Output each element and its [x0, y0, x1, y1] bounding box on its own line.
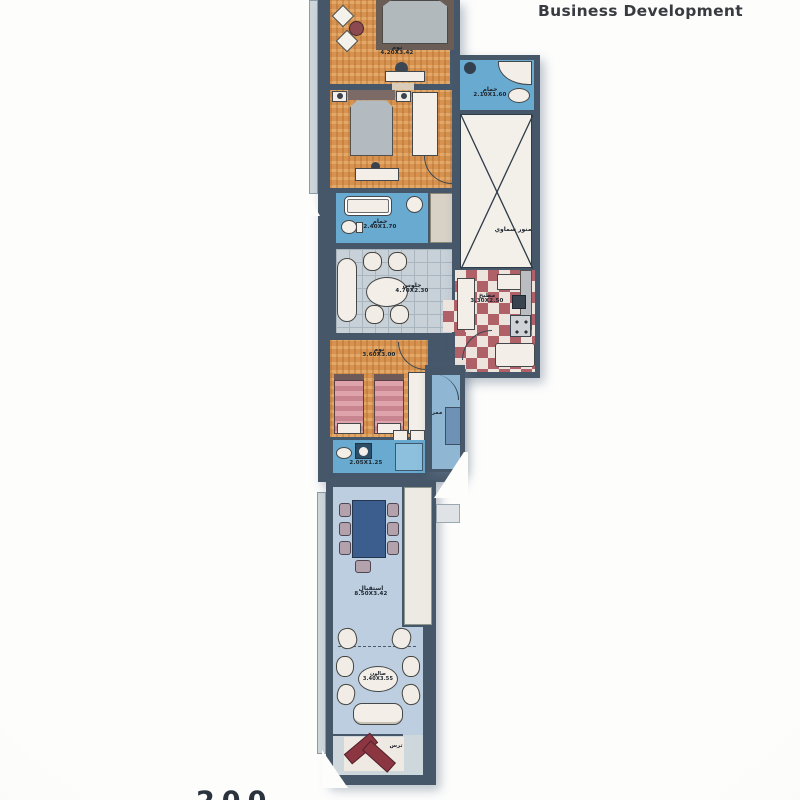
light-well	[460, 114, 532, 268]
lamp-icon	[337, 93, 343, 99]
kitchen-table	[495, 343, 535, 367]
armchair	[336, 656, 354, 677]
stove-burners	[510, 315, 531, 337]
sofa	[353, 703, 403, 725]
bedroom1-label: نوم 4.20X3.42	[362, 45, 432, 57]
double-bed	[350, 98, 393, 156]
side-table	[349, 21, 364, 36]
sink	[336, 447, 352, 459]
bedroom3-label: نوم 3.60X3.00	[356, 347, 402, 359]
toilet	[508, 88, 530, 103]
shower-area	[395, 443, 423, 471]
building-lower-wing: استقبال 8.50X3.42 صالون 3.40X3.55 ترس	[326, 480, 436, 785]
hall-label: ممر	[429, 411, 445, 417]
door-gap	[392, 83, 414, 90]
wardrobe	[412, 92, 438, 156]
sink	[406, 196, 423, 213]
exterior-ledge	[436, 504, 460, 523]
reception-label: استقبال 8.50X3.42	[346, 586, 396, 598]
light-well-label: منور سماوي	[492, 227, 534, 233]
chair	[365, 305, 384, 324]
dresser	[355, 168, 399, 181]
annex-bathroom-label: حمام 2.10X1.60	[470, 87, 510, 99]
building-annex: حمام 2.10X1.60 منور سماوي مطبخ 3.30X2.50	[452, 55, 540, 378]
page-title: Business Development	[538, 2, 743, 20]
toilet-bowl	[359, 447, 368, 456]
chair	[363, 252, 382, 271]
dining-chair	[339, 503, 351, 517]
balcony-trim-upper	[309, 0, 318, 194]
toilet	[341, 220, 357, 234]
dining-chair	[355, 560, 371, 573]
chair	[390, 305, 409, 324]
sitting-room-label: جلوس 4.70X2.30	[394, 283, 430, 295]
double-bed	[382, 0, 448, 44]
dining-chair	[387, 503, 399, 517]
light-well-cross-icon	[461, 115, 533, 269]
entry-hall: ممر	[425, 365, 465, 472]
balcony-trim-lower	[317, 492, 326, 754]
partial-bottom-text: 200	[196, 786, 273, 800]
bed2-headboard	[348, 90, 395, 100]
dining-chair	[339, 541, 351, 555]
dining-chair	[339, 522, 351, 536]
wardrobe	[408, 372, 426, 434]
scanned-floor-plan-page: Business Development نوم 4.20X3.42	[0, 0, 800, 800]
bathroom2-label: 2.05X1.25	[344, 461, 388, 467]
dining-chair	[387, 541, 399, 555]
dining-table	[352, 500, 386, 558]
salon-label: صالون 3.40X3.55	[360, 672, 396, 683]
dining-chair	[387, 522, 399, 536]
chair	[388, 252, 407, 271]
kitchen-label: مطبخ 3.30X2.50	[467, 293, 507, 305]
dresser	[385, 71, 425, 82]
bed-pillow	[337, 423, 361, 434]
terrace-label: ترس	[386, 744, 406, 750]
bathtub	[344, 196, 392, 216]
bench-seat	[337, 258, 357, 322]
open-terrace-strip	[404, 487, 432, 625]
door-pivot-icon	[464, 62, 476, 74]
entry-landing	[445, 407, 461, 445]
bathroom1-label: حمام 2.40X1.70	[358, 219, 402, 231]
kitchen-sink-unit	[512, 295, 526, 309]
lamp-icon	[401, 93, 407, 99]
armchair	[402, 656, 420, 677]
